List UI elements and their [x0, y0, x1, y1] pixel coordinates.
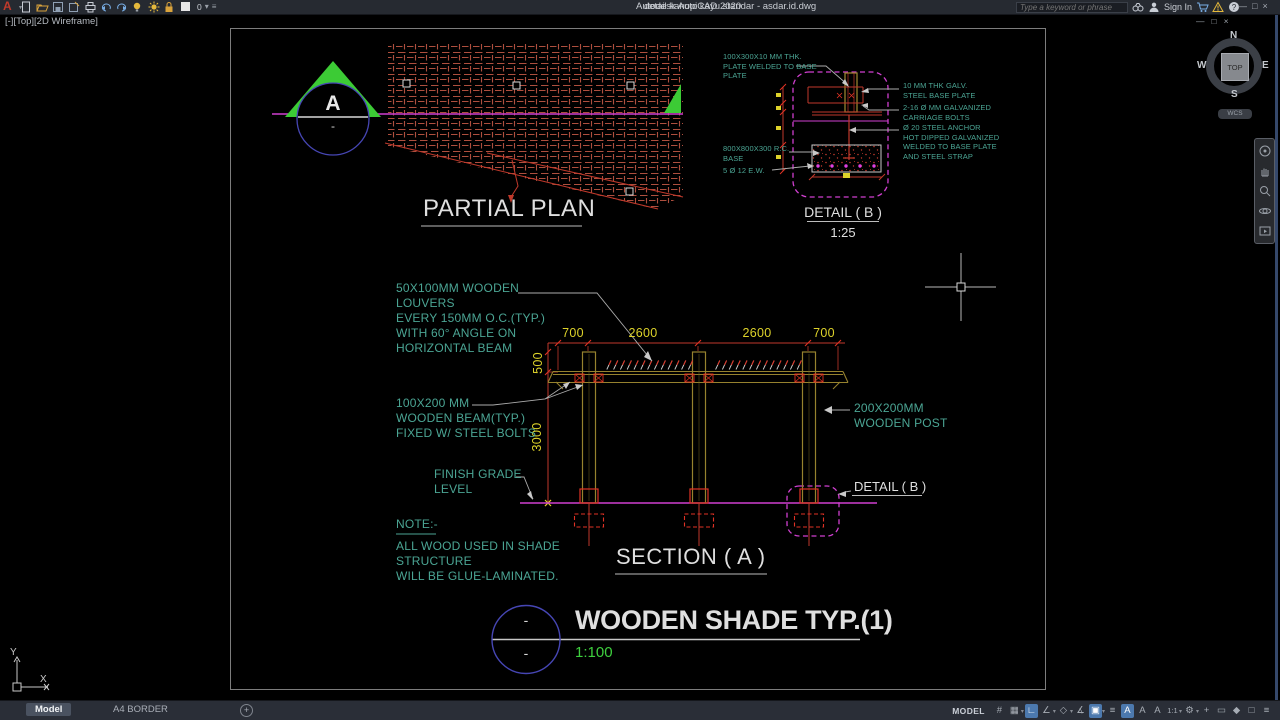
workspace-gear-icon-caret[interactable]: ▾ — [1196, 708, 1199, 715]
status-toggles: MODEL #▦▾∟∠▾◇▾∡▣▾≡AAA1:1▾⚙▾+▭◆□≡ — [952, 703, 1274, 719]
new-layout-tab-button[interactable]: + — [240, 704, 253, 717]
section-marker-letter: A — [323, 92, 343, 116]
dim-700-right: 700 — [799, 326, 849, 340]
dim-2600-left: 2600 — [618, 326, 668, 340]
viewcube-west[interactable]: W — [1197, 60, 1206, 71]
autocad-window: A ▾▾0▾≡ Autodesk AutoCAD 2020 detail kan… — [0, 0, 1280, 720]
maximize-button[interactable]: □ — [1252, 0, 1257, 13]
main-marker-bottom-dash: - — [521, 645, 531, 661]
annotation-monitor-icon[interactable]: A — [1151, 704, 1164, 718]
dim-2600-right: 2600 — [732, 326, 782, 340]
sign-in-button[interactable]: Sign In — [1164, 2, 1192, 12]
viewcube[interactable]: N W E S TOP — [1200, 32, 1268, 100]
zoom-icon[interactable] — [1258, 184, 1272, 198]
doc-close-button[interactable]: × — [1224, 16, 1229, 26]
customization-icon[interactable]: + — [1200, 704, 1213, 718]
tab-a4-border[interactable]: A4 BORDER — [104, 703, 177, 716]
object-snap-tracking-icon[interactable]: ∡ — [1074, 704, 1087, 718]
doc-restore-button[interactable]: □ — [1212, 16, 1217, 26]
object-snap-icon[interactable]: ▣ — [1089, 704, 1102, 718]
minimize-button[interactable]: — — [1238, 0, 1247, 13]
grid-icon[interactable]: # — [993, 704, 1006, 718]
snap-icon-caret[interactable]: ▾ — [1021, 708, 1024, 715]
snap-icon[interactable]: ▦ — [1008, 704, 1021, 718]
search-input[interactable] — [1016, 2, 1128, 13]
detail-b-label-base-plate: 10 MM THK GALV. STEEL BASE PLATE — [903, 81, 975, 100]
canvas-edge-scrollbar[interactable] — [1275, 14, 1278, 700]
detail-b-scale: 1:25 — [783, 225, 903, 240]
polar-tracking-icon[interactable]: ∠ — [1040, 704, 1053, 718]
graphics-performance-icon[interactable]: ◆ — [1230, 704, 1243, 718]
status-bar: Model A4 BORDER + MODEL #▦▾∟∠▾◇▾∡▣▾≡AAA1… — [0, 700, 1280, 720]
viewcube-south[interactable]: S — [1231, 89, 1238, 100]
main-marker-top-dash: - — [521, 612, 531, 628]
model-space-button[interactable]: MODEL — [952, 706, 985, 716]
isodraft-icon[interactable]: ◇ — [1057, 704, 1070, 718]
navigation-wheel-icon[interactable] — [1258, 144, 1272, 158]
search-binoculars-icon[interactable] — [1132, 1, 1144, 13]
search-box — [1016, 2, 1128, 13]
title-bar: A ▾▾0▾≡ Autodesk AutoCAD 2020 detail kan… — [0, 0, 1280, 15]
annotation-scale-button[interactable]: 1:1 — [1166, 704, 1179, 718]
navigation-bar — [1254, 138, 1275, 244]
hamburger-menu-icon[interactable]: ≡ — [1260, 704, 1273, 718]
model-space-canvas[interactable] — [0, 14, 1280, 700]
main-title: WOODEN SHADE TYP.(1) — [575, 605, 893, 636]
document-window-controls: — □ × — [1196, 16, 1229, 26]
dim-700-left: 700 — [548, 326, 598, 340]
viewcube-top-face[interactable]: TOP — [1221, 53, 1249, 81]
isodraft-icon-caret[interactable]: ▾ — [1070, 708, 1073, 715]
workspace-gear-icon[interactable]: ⚙ — [1183, 704, 1196, 718]
label-louvers: 50X100MM WOODEN LOUVERS EVERY 150MM O.C.… — [396, 281, 545, 356]
clean-screen-icon[interactable]: □ — [1245, 704, 1258, 718]
ucs-y-label: Y — [10, 647, 17, 658]
polar-tracking-icon-caret[interactable]: ▾ — [1053, 708, 1056, 715]
ucs-x-label: X — [40, 674, 47, 685]
viewcube-east[interactable]: E — [1262, 60, 1269, 71]
object-snap-icon-caret[interactable]: ▾ — [1102, 708, 1105, 715]
tab-model[interactable]: Model — [26, 703, 71, 716]
viewport-controls[interactable]: [-][Top][2D Wireframe] — [5, 16, 98, 27]
label-finish-grade: FINISH GRADE LEVEL — [434, 467, 522, 497]
alert-triangle-icon[interactable] — [1212, 1, 1224, 13]
note-title: NOTE:- — [396, 517, 438, 532]
show-motion-icon[interactable] — [1258, 224, 1272, 238]
wcs-dropdown[interactable]: WCS — [1218, 109, 1252, 119]
pan-icon[interactable] — [1258, 164, 1272, 178]
svg-text:?: ? — [1232, 3, 1237, 12]
detail-b-label-anchor: Ø 20 STEEL ANCHOR HOT DIPPED GALVANIZED … — [903, 123, 999, 161]
detail-b-title: DETAIL ( B ) — [783, 204, 903, 220]
section-marker-dash: - — [328, 119, 338, 133]
partial-plan-title: PARTIAL PLAN — [423, 195, 595, 223]
note-body: ALL WOOD USED IN SHADE STRUCTURE WILL BE… — [396, 539, 560, 584]
window-controls: — □ × — [1238, 0, 1280, 13]
detail-b-label-plate: 100X300X10 MM THK. PLATE WELDED TO BASE … — [723, 52, 817, 81]
detail-b-label-bolts: 2-16 Ø MM GALVANIZED CARRIAGE BOLTS — [903, 103, 991, 122]
detail-b-label-rc-base: 800X800X300 R.C. BASE — [723, 144, 789, 163]
user-icon[interactable] — [1148, 1, 1160, 13]
close-button[interactable]: × — [1262, 0, 1267, 13]
label-post: 200X200MM WOODEN POST — [854, 401, 948, 431]
main-title-scale: 1:100 — [575, 644, 613, 661]
cart-icon[interactable] — [1196, 1, 1208, 13]
detail-ref-label: DETAIL ( B ) — [854, 479, 926, 494]
section-a-title: SECTION ( A ) — [616, 544, 766, 570]
isolate-objects-icon[interactable]: ▭ — [1215, 704, 1228, 718]
detail-b-label-rebar: 5 Ø 12 E.W. — [723, 166, 765, 176]
annotation-visibility-icon[interactable]: A — [1121, 704, 1134, 718]
doc-minimize-button[interactable]: — — [1196, 16, 1205, 26]
annotation-autoscale-icon[interactable]: A — [1136, 704, 1149, 718]
viewcube-north[interactable]: N — [1230, 30, 1237, 41]
lineweight-icon[interactable]: ≡ — [1106, 704, 1119, 718]
ortho-icon[interactable]: ∟ — [1025, 704, 1038, 718]
orbit-icon[interactable] — [1258, 204, 1272, 218]
label-beam: 100X200 MM WOODEN BEAM(TYP.) FIXED W/ ST… — [396, 396, 536, 441]
annotation-scale-button-caret[interactable]: ▾ — [1179, 708, 1182, 715]
